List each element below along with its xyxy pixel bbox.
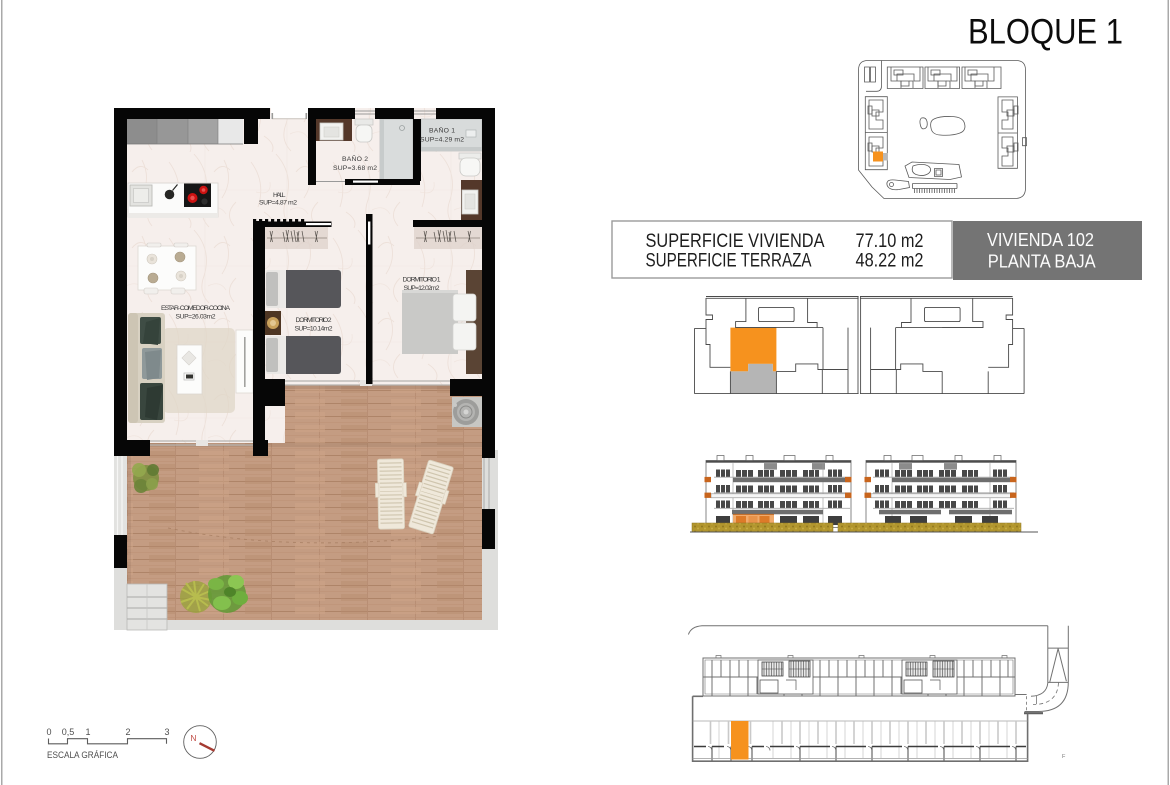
svg-text:0,5: 0,5 bbox=[62, 727, 75, 737]
svg-text:2: 2 bbox=[125, 727, 130, 737]
svg-text:SUP=3.68 m2: SUP=3.68 m2 bbox=[333, 165, 377, 172]
svg-text:0: 0 bbox=[46, 727, 51, 737]
svg-text:PLANTA BAJA: PLANTA BAJA bbox=[988, 251, 1096, 271]
svg-text:ESCALA GRÁFICA: ESCALA GRÁFICA bbox=[47, 750, 118, 760]
svg-text:77.10 m2: 77.10 m2 bbox=[856, 231, 924, 252]
svg-text:BAÑO 1: BAÑO 1 bbox=[429, 126, 455, 135]
svg-text:F: F bbox=[1062, 754, 1066, 760]
svg-text:SUP=4.29 m2: SUP=4.29 m2 bbox=[420, 137, 464, 144]
svg-text:N: N bbox=[190, 733, 196, 743]
svg-text:VIVIENDA 102: VIVIENDA 102 bbox=[987, 230, 1094, 250]
svg-text:SUP=10.14m2: SUP=10.14m2 bbox=[295, 326, 333, 333]
svg-text:SUPERFICIE TERRAZA: SUPERFICIE TERRAZA bbox=[646, 251, 812, 272]
svg-text:BAÑO 2: BAÑO 2 bbox=[342, 154, 368, 163]
svg-text:3: 3 bbox=[164, 727, 169, 737]
svg-text:HALL: HALL bbox=[273, 192, 286, 199]
svg-text:1: 1 bbox=[85, 727, 90, 737]
svg-text:SUP=12.02m2: SUP=12.02m2 bbox=[404, 285, 440, 292]
svg-text:48.22 m2: 48.22 m2 bbox=[856, 251, 924, 272]
svg-text:SUP=4.87 m2: SUP=4.87 m2 bbox=[259, 200, 297, 207]
svg-text:DORMITORIO 2: DORMITORIO 2 bbox=[296, 317, 332, 324]
svg-text:ESTAR- COMEDOR-COCINA: ESTAR- COMEDOR-COCINA bbox=[161, 305, 230, 312]
svg-text:DORMITORIO 1: DORMITORIO 1 bbox=[403, 277, 441, 284]
svg-text:SUP=26.03m2: SUP=26.03m2 bbox=[176, 314, 216, 321]
svg-text:BLOQUE 1: BLOQUE 1 bbox=[968, 12, 1123, 52]
svg-text:SUPERFICIE VIVIENDA: SUPERFICIE VIVIENDA bbox=[646, 231, 825, 252]
